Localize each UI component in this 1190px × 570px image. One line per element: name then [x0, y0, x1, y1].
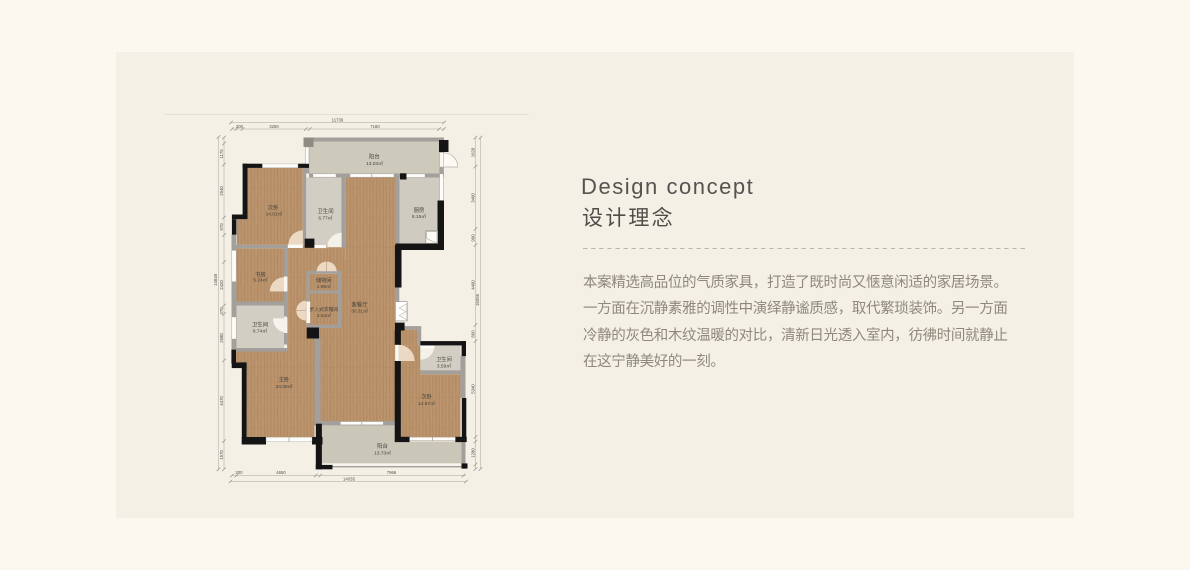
svg-text:7966: 7966 [387, 470, 397, 475]
svg-text:1620: 1620 [470, 147, 475, 157]
svg-text:14.02㎡: 14.02㎡ [266, 211, 283, 218]
svg-text:14.67㎡: 14.67㎡ [418, 400, 435, 407]
svg-text:5340: 5340 [470, 384, 475, 394]
svg-text:1.99㎡: 1.99㎡ [317, 283, 331, 290]
svg-text:23.08㎡: 23.08㎡ [276, 383, 293, 390]
svg-text:3.59㎡: 3.59㎡ [437, 362, 451, 369]
svg-text:1175: 1175 [219, 149, 224, 159]
svg-text:6.77㎡: 6.77㎡ [318, 214, 332, 221]
svg-text:200: 200 [235, 470, 243, 475]
svg-text:2940: 2940 [219, 186, 224, 196]
svg-text:步入式衣帽间: 步入式衣帽间 [309, 306, 338, 313]
svg-text:13.03㎡: 13.03㎡ [366, 160, 383, 167]
svg-text:6.74㎡: 6.74㎡ [253, 328, 267, 335]
svg-text:11736: 11736 [332, 117, 344, 122]
svg-text:200: 200 [236, 124, 244, 129]
svg-text:970: 970 [219, 223, 224, 231]
svg-text:890: 890 [470, 330, 475, 338]
svg-text:卫生间: 卫生间 [436, 355, 452, 363]
svg-text:4460: 4460 [470, 280, 475, 290]
svg-text:4470: 4470 [219, 396, 224, 406]
svg-text:次卧: 次卧 [421, 393, 432, 401]
svg-text:书房: 书房 [255, 270, 266, 278]
svg-text:阳台: 阳台 [369, 153, 380, 161]
svg-text:2420: 2420 [219, 280, 224, 290]
svg-text:7160: 7160 [370, 124, 380, 129]
svg-text:18395: 18395 [475, 293, 480, 306]
svg-text:阳台: 阳台 [377, 442, 388, 450]
svg-text:3250: 3250 [269, 124, 279, 129]
svg-text:5.24㎡: 5.24㎡ [253, 277, 267, 284]
svg-text:1280: 1280 [470, 448, 475, 458]
svg-text:1570: 1570 [219, 450, 224, 460]
svg-text:14848: 14848 [213, 273, 218, 286]
svg-text:4650: 4650 [276, 470, 286, 475]
svg-text:卫生间: 卫生间 [317, 207, 333, 215]
svg-text:900: 900 [470, 234, 475, 242]
svg-text:次卧: 次卧 [268, 203, 279, 211]
svg-text:13.73㎡: 13.73㎡ [374, 450, 391, 457]
svg-text:8.15㎡: 8.15㎡ [412, 213, 426, 220]
svg-text:470: 470 [219, 307, 224, 315]
svg-text:储物间: 储物间 [316, 276, 332, 284]
svg-text:厨房: 厨房 [414, 206, 425, 214]
svg-text:主卧: 主卧 [279, 376, 290, 384]
svg-text:卫生间: 卫生间 [252, 320, 268, 328]
svg-text:30.31㎡: 30.31㎡ [351, 308, 368, 315]
svg-text:2580: 2580 [219, 333, 224, 343]
svg-text:客餐厅: 客餐厅 [351, 301, 368, 309]
svg-text:3.54㎡: 3.54㎡ [317, 312, 331, 319]
svg-text:3460: 3460 [470, 193, 475, 203]
svg-text:14035: 14035 [343, 476, 356, 481]
